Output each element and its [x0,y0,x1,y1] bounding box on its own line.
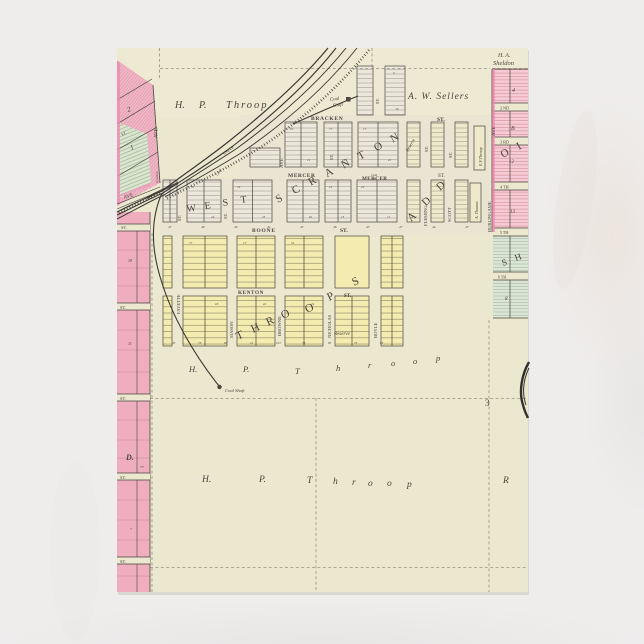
svg-text:17: 17 [243,241,247,245]
svg-text:73: 73 [198,341,202,345]
svg-text:P.: P. [258,475,266,485]
svg-text:3 RD: 3 RD [500,140,509,145]
svg-text:5 TH: 5 TH [500,230,508,235]
svg-text:ST.: ST. [223,213,228,219]
svg-text:101: 101 [276,341,281,345]
svg-text:ST.: ST. [121,225,127,230]
svg-text:Throop: Throop [226,100,269,111]
svg-text:T: T [307,476,313,486]
svg-text:p: p [435,353,440,363]
svg-text:A. Thomas: A. Thomas [474,201,479,220]
svg-text:BOONE: BOONE [252,228,276,234]
svg-text:46: 46 [333,225,337,229]
svg-text:o: o [368,479,373,489]
svg-text:ST.: ST. [120,559,126,564]
svg-text:61: 61 [309,215,313,219]
svg-text:12: 12 [509,160,515,165]
svg-text:ST.: ST. [177,215,182,221]
svg-text:2 ND: 2 ND [500,106,509,111]
svg-text:p: p [406,480,412,490]
svg-text:R: R [502,476,509,486]
svg-text:h: h [336,363,340,373]
svg-text:20: 20 [172,341,176,345]
svg-text:P.: P. [198,100,206,111]
svg-text:AVE: AVE [155,128,160,138]
svg-text:B: B [511,126,515,132]
svg-text:ST.: ST. [329,154,334,160]
svg-text:45: 45 [366,225,370,229]
svg-text:24: 24 [311,302,315,306]
svg-text:ST.: ST. [375,98,380,104]
svg-text:Reserve: Reserve [333,332,351,337]
svg-text:6 TH: 6 TH [498,275,506,280]
svg-text:47: 47 [465,225,469,229]
svg-text:47: 47 [168,225,172,229]
svg-text:A. W. Sellers: A. W. Sellers [407,92,469,102]
svg-text:AVE: AVE [492,126,497,136]
svg-text:NICHOLAS: NICHOLAS [327,314,332,338]
svg-text:77: 77 [329,127,333,131]
svg-text:47: 47 [399,225,403,229]
svg-text:H.: H. [174,100,185,111]
svg-text:13: 13 [510,210,516,215]
svg-text:BOYLE: BOYLE [373,322,378,338]
svg-text:ST.: ST. [424,146,429,152]
svg-text:ST.: ST. [340,228,348,234]
svg-text:ST.: ST. [438,174,445,179]
svg-text:13: 13 [341,215,345,219]
svg-text:19: 19 [237,185,241,189]
svg-text:Coal Shaft: Coal Shaft [225,388,245,393]
svg-text:77: 77 [189,241,193,245]
svg-text:4: 4 [512,87,515,94]
svg-text:h: h [333,477,338,487]
svg-text:73: 73 [354,341,358,345]
svg-text:83: 83 [328,341,332,345]
svg-text:Scranton: Scranton [155,171,159,183]
svg-text:5: 5 [393,71,395,75]
svg-text:D.: D. [125,453,134,462]
svg-text:KENTON: KENTON [238,290,264,296]
svg-text:ST.: ST. [120,305,126,310]
svg-text:45: 45 [300,225,304,229]
svg-text:SCOTT: SCOTT [447,207,452,222]
svg-text:BURLINGAME: BURLINGAME [487,201,492,232]
svg-text:83: 83 [224,341,228,345]
svg-text:48: 48 [201,225,205,229]
svg-text:22: 22 [263,302,267,306]
svg-text:ST.: ST. [120,396,126,401]
svg-text:BROWNE: BROWNE [277,316,282,336]
svg-text:MASON: MASON [229,321,234,338]
svg-text:H.: H. [201,475,211,485]
svg-text:73: 73 [302,341,306,345]
svg-text:Sheldon: Sheldon [493,60,514,67]
svg-text:31: 31 [291,241,295,245]
svg-text:11: 11 [387,215,390,219]
svg-text:o: o [413,356,417,366]
svg-text:22: 22 [388,158,392,162]
svg-text:4 TH: 4 TH [500,185,509,190]
svg-text:11: 11 [307,158,310,162]
svg-text:BRACKEN: BRACKEN [311,116,343,122]
svg-text:14: 14 [291,185,295,189]
svg-text:31: 31 [191,185,195,189]
svg-text:79: 79 [140,465,144,469]
svg-text:10: 10 [128,258,132,263]
svg-text:40: 40 [234,225,238,229]
svg-text:3: 3 [485,398,490,408]
svg-text:44: 44 [432,225,436,229]
svg-text:P.: P. [242,364,249,374]
svg-text:H. A.: H. A. [497,53,510,59]
svg-text:ST.: ST. [344,294,352,299]
svg-text:21: 21 [250,341,254,345]
svg-text:o: o [391,358,395,368]
svg-text:FAYETTE: FAYETTE [176,294,181,314]
svg-text:o: o [387,479,392,489]
svg-text:17: 17 [363,127,367,131]
svg-text:H.: H. [188,364,197,374]
svg-text:r: r [352,478,356,488]
svg-text:25: 25 [262,215,266,219]
svg-text:AVE: AVE [279,158,285,168]
svg-text:12: 12 [329,185,333,189]
svg-text:16: 16 [215,302,219,306]
svg-text:16: 16 [342,158,346,162]
svg-text:85: 85 [380,341,384,345]
svg-text:10: 10 [290,127,294,131]
svg-text:7: 7 [130,527,132,531]
svg-text:ST.: ST. [120,475,126,480]
svg-text:24: 24 [211,215,215,219]
svg-text:11: 11 [128,341,132,346]
svg-text:E.F.Throop: E.F.Throop [478,147,483,167]
svg-text:ST.: ST. [448,152,453,158]
svg-text:10: 10 [361,185,365,189]
